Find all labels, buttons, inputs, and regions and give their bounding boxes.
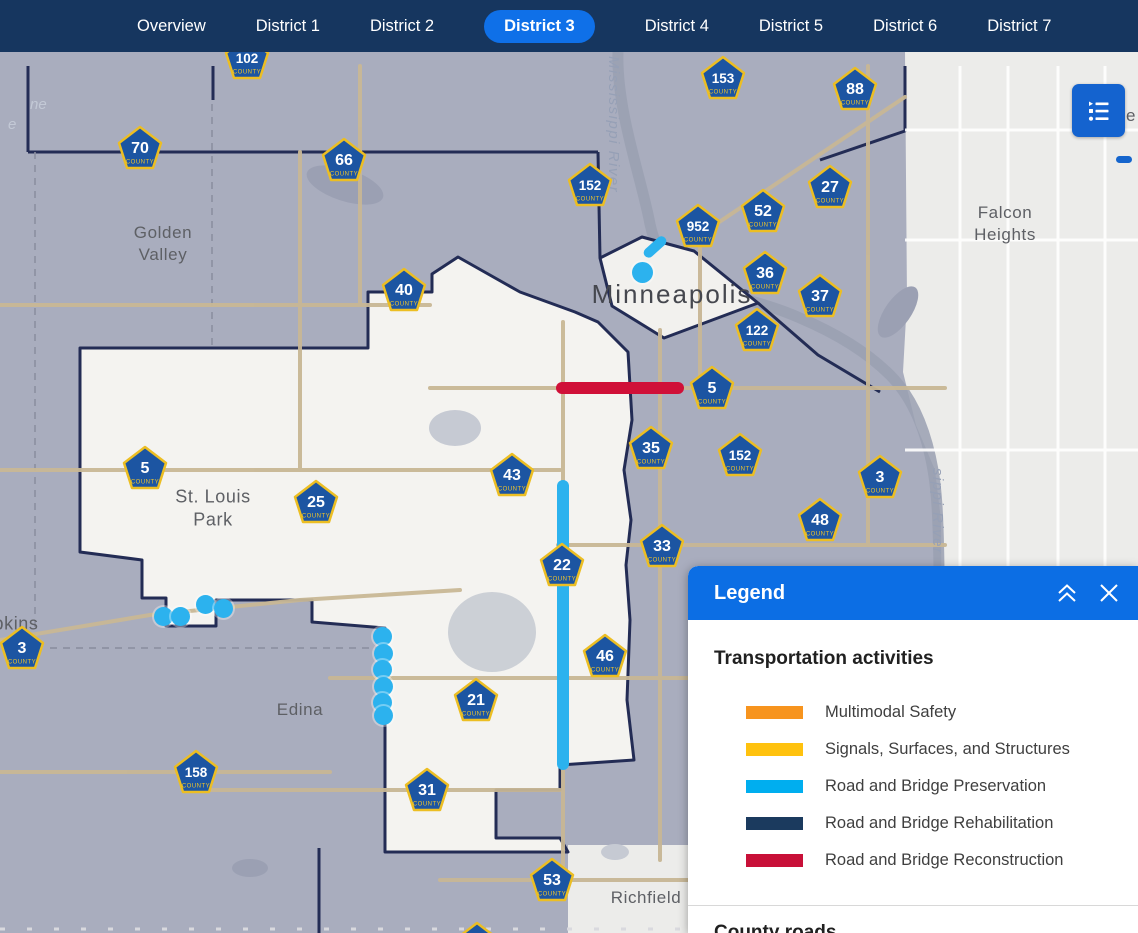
legend-swatch <box>746 743 803 756</box>
city-label-golden-valley: Golden Valley <box>134 222 192 266</box>
water-label-mississippi-river: sippi River <box>929 468 946 555</box>
map-feature-blue-dash[interactable] <box>1116 156 1132 163</box>
svg-text:COUNTY: COUNTY <box>866 489 894 495</box>
svg-text:88: 88 <box>846 81 864 98</box>
city-label-falcon-heights: Falcon Heights <box>974 202 1036 246</box>
svg-text:5: 5 <box>141 460 150 477</box>
legend-toggle-button[interactable] <box>1072 84 1125 137</box>
county-road-shield-88: 88COUNTY <box>832 66 878 112</box>
svg-text:COUNTY: COUNTY <box>726 467 754 473</box>
tab-district-3[interactable]: District 3 <box>484 10 595 43</box>
svg-text:43: 43 <box>503 467 521 484</box>
legend-close-button[interactable] <box>1096 580 1122 606</box>
county-road-shield-66: 66COUNTY <box>321 137 367 183</box>
svg-text:66: 66 <box>335 152 353 169</box>
county-road-shield-31: 31COUNTY <box>404 767 450 813</box>
legend-collapse-button[interactable] <box>1054 580 1080 606</box>
map-label-fragment: e <box>1126 106 1135 126</box>
tab-district-4[interactable]: District 4 <box>645 10 709 43</box>
svg-text:COUNTY: COUNTY <box>576 197 604 203</box>
county-road-shield-3: 3COUNTY <box>0 625 45 671</box>
legend-swatch <box>746 706 803 719</box>
city-label-richfield: Richfield <box>611 887 682 909</box>
tab-district-2[interactable]: District 2 <box>370 10 434 43</box>
map-label-fragment: e <box>8 116 16 133</box>
svg-text:COUNTY: COUNTY <box>637 460 665 466</box>
county-road-shield-5: 5COUNTY <box>122 445 168 491</box>
svg-text:COUNTY: COUNTY <box>841 101 869 107</box>
feature-preservation-line[interactable] <box>557 480 569 770</box>
tab-district-1[interactable]: District 1 <box>256 10 320 43</box>
county-road-shield-21: 21COUNTY <box>453 677 499 723</box>
legend-swatch <box>746 817 803 830</box>
svg-text:COUNTY: COUNTY <box>330 172 358 178</box>
svg-text:35: 35 <box>642 440 660 457</box>
svg-text:COUNTY: COUNTY <box>498 487 526 493</box>
city-label-st-louis-park: St. Louis Park <box>175 486 250 533</box>
county-road-shield-46: 46COUNTY <box>582 633 628 679</box>
svg-text:COUNTY: COUNTY <box>390 302 418 308</box>
svg-text:33: 33 <box>653 538 671 555</box>
legend-divider <box>688 905 1138 906</box>
county-road-shield-25: 25COUNTY <box>293 479 339 525</box>
svg-text:102: 102 <box>236 51 259 66</box>
svg-text:COUNTY: COUNTY <box>743 342 771 348</box>
svg-text:COUNTY: COUNTY <box>126 160 154 166</box>
svg-text:COUNTY: COUNTY <box>8 660 36 666</box>
svg-text:3: 3 <box>876 469 885 486</box>
svg-text:COUNTY: COUNTY <box>182 784 210 790</box>
svg-text:COUNTY: COUNTY <box>233 70 261 76</box>
svg-text:22: 22 <box>553 557 571 574</box>
svg-text:48: 48 <box>811 512 829 529</box>
svg-text:36: 36 <box>756 265 774 282</box>
legend-section-title-county-roads: County roads <box>714 922 1112 933</box>
feature-preservation-dot[interactable] <box>373 660 392 679</box>
legend-body: Transportation activities Multimodal Saf… <box>688 620 1138 933</box>
svg-text:COUNTY: COUNTY <box>462 712 490 718</box>
svg-text:70: 70 <box>131 140 149 157</box>
svg-text:153: 153 <box>712 71 735 86</box>
svg-text:COUNTY: COUNTY <box>413 802 441 808</box>
svg-text:COUNTY: COUNTY <box>131 480 159 486</box>
svg-text:COUNTY: COUNTY <box>591 668 619 674</box>
county-road-shield-22: 22COUNTY <box>539 542 585 588</box>
svg-text:COUNTY: COUNTY <box>806 532 834 538</box>
county-road-shield-152: 152COUNTY <box>717 432 763 478</box>
tab-district-5[interactable]: District 5 <box>759 10 823 43</box>
svg-text:53: 53 <box>543 872 561 889</box>
svg-text:152: 152 <box>729 448 752 463</box>
county-road-shield-36: 36COUNTY <box>742 250 788 296</box>
legend-title: Legend <box>714 582 1054 605</box>
feature-reconstruction-line[interactable] <box>556 382 684 394</box>
svg-text:152: 152 <box>579 178 602 193</box>
county-road-shield-70: 70COUNTY <box>117 125 163 171</box>
county-road-shield-158: 158COUNTY <box>173 749 219 795</box>
close-icon <box>1097 581 1121 605</box>
feature-preservation-dot[interactable] <box>214 599 233 618</box>
feature-preservation-dot[interactable] <box>154 607 173 626</box>
county-road-shield-37: 37COUNTY <box>797 273 843 319</box>
county-road-shield-952: 952COUNTY <box>675 203 721 249</box>
legend-item-multimodal-safety: Multimodal Safety <box>714 694 1112 731</box>
svg-text:122: 122 <box>746 323 769 338</box>
svg-text:21: 21 <box>467 692 485 709</box>
county-road-shield-3: 3COUNTY <box>857 454 903 500</box>
svg-text:158: 158 <box>185 765 208 780</box>
svg-text:3: 3 <box>18 640 27 657</box>
svg-text:31: 31 <box>418 782 436 799</box>
feature-preservation-dot[interactable] <box>171 607 190 626</box>
county-road-shield-122: 122COUNTY <box>734 307 780 353</box>
county-road-shield-33: 33COUNTY <box>639 523 685 569</box>
svg-text:COUNTY: COUNTY <box>749 223 777 229</box>
legend-item-road-and-bridge-reconstruction: Road and Bridge Reconstruction <box>714 842 1112 879</box>
legend-swatch <box>746 780 803 793</box>
legend-item-road-and-bridge-preservation: Road and Bridge Preservation <box>714 768 1112 805</box>
svg-text:COUNTY: COUNTY <box>806 308 834 314</box>
feature-preservation-dot[interactable] <box>632 262 653 283</box>
svg-text:5: 5 <box>708 380 717 397</box>
svg-text:52: 52 <box>754 203 772 220</box>
svg-text:COUNTY: COUNTY <box>698 400 726 406</box>
svg-text:COUNTY: COUNTY <box>302 514 330 520</box>
county-road-shield-153: 153COUNTY <box>700 55 746 101</box>
chevrons-up-icon <box>1055 581 1079 605</box>
county-road-shield-partial <box>454 921 500 933</box>
city-label-edina: Edina <box>277 699 323 721</box>
legend-rows: Multimodal SafetySignals, Surfaces, and … <box>714 694 1112 879</box>
legend-list-icon <box>1085 97 1112 124</box>
county-road-shield-40: 40COUNTY <box>381 267 427 313</box>
svg-text:COUNTY: COUNTY <box>538 892 566 898</box>
county-road-shield-27: 27COUNTY <box>807 164 853 210</box>
svg-text:40: 40 <box>395 282 413 299</box>
svg-text:COUNTY: COUNTY <box>684 238 712 244</box>
legend-label: Road and Bridge Preservation <box>825 777 1046 796</box>
city-label-minneapolis: Minneapolis <box>592 278 753 312</box>
svg-text:25: 25 <box>307 494 325 511</box>
tab-district-6[interactable]: District 6 <box>873 10 937 43</box>
svg-text:COUNTY: COUNTY <box>709 90 737 96</box>
svg-text:COUNTY: COUNTY <box>751 285 779 291</box>
legend-panel: Legend Transportation ac <box>688 566 1138 933</box>
county-road-shield-43: 43COUNTY <box>489 452 535 498</box>
district-tab-bar: OverviewDistrict 1District 2District 3Di… <box>0 0 1138 52</box>
svg-text:952: 952 <box>687 219 710 234</box>
svg-text:COUNTY: COUNTY <box>548 577 576 583</box>
app-window: Golden ValleyMinneapolisFalcon HeightsSt… <box>0 0 1138 933</box>
map-label-fragment: ne <box>30 96 47 113</box>
legend-label: Road and Bridge Rehabilitation <box>825 814 1053 833</box>
legend-panel-header: Legend <box>688 566 1138 620</box>
svg-text:COUNTY: COUNTY <box>816 199 844 205</box>
feature-preservation-dot[interactable] <box>374 706 393 725</box>
feature-preservation-dot[interactable] <box>373 627 392 646</box>
svg-text:COUNTY: COUNTY <box>648 558 676 564</box>
legend-swatch <box>746 854 803 867</box>
county-road-shield-48: 48COUNTY <box>797 497 843 543</box>
legend-label: Signals, Surfaces, and Structures <box>825 740 1070 759</box>
county-road-shield-5: 5COUNTY <box>689 365 735 411</box>
county-road-shield-53: 53COUNTY <box>529 857 575 903</box>
feature-preservation-dot[interactable] <box>196 595 215 614</box>
legend-item-signals-surfaces-and-structures: Signals, Surfaces, and Structures <box>714 731 1112 768</box>
legend-label: Multimodal Safety <box>825 703 956 722</box>
legend-item-road-and-bridge-rehabilitation: Road and Bridge Rehabilitation <box>714 805 1112 842</box>
tab-overview[interactable]: Overview <box>137 10 206 43</box>
county-road-shield-152: 152COUNTY <box>567 162 613 208</box>
county-road-shield-35: 35COUNTY <box>628 425 674 471</box>
svg-text:46: 46 <box>596 648 614 665</box>
tab-district-7[interactable]: District 7 <box>987 10 1051 43</box>
county-road-shield-52: 52COUNTY <box>740 188 786 234</box>
legend-section-title: Transportation activities <box>714 648 1112 670</box>
legend-label: Road and Bridge Reconstruction <box>825 851 1063 870</box>
svg-text:37: 37 <box>811 288 829 305</box>
svg-text:27: 27 <box>821 179 839 196</box>
